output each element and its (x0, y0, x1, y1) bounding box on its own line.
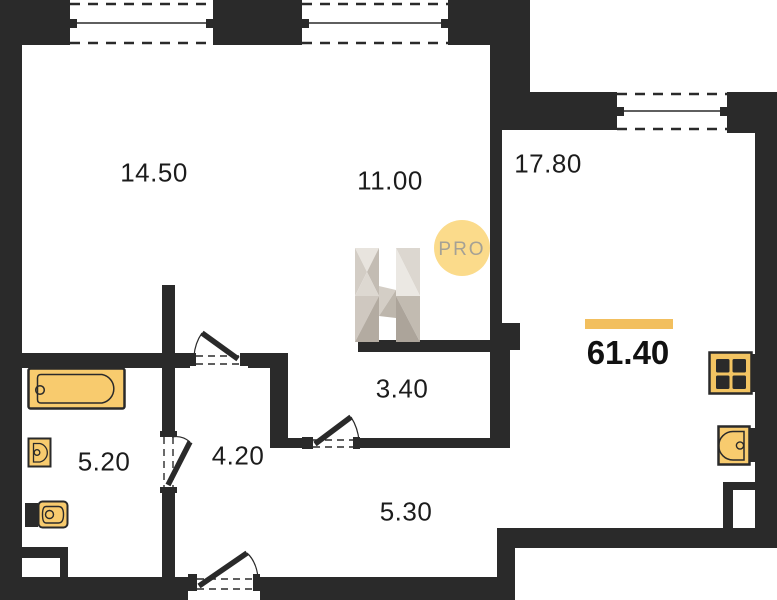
window-icon (302, 4, 448, 43)
window-icon (70, 4, 213, 43)
toilet-icon (25, 502, 68, 528)
window-icon (617, 94, 727, 129)
floor-plan: PRO 14.50 11.00 17.80 3.40 4.20 5.20 5.3… (0, 0, 777, 600)
total-area-accent-bar (585, 319, 673, 329)
kitchen-sink-icon (719, 427, 756, 465)
room-area-label-17-80: 17.80 (514, 149, 582, 180)
room-area-label-11-00: 11.00 (357, 166, 423, 197)
logo-h-icon (355, 248, 420, 342)
logo-pro-badge: PRO (434, 220, 490, 276)
bathtub-icon (29, 369, 125, 409)
entrance-door-icon (197, 553, 258, 589)
total-area-label: 61.40 (587, 334, 670, 372)
room-area-label-5-30: 5.30 (380, 497, 433, 528)
room-area-label-14-50: 14.50 (120, 158, 188, 189)
room-area-label-5-20: 5.20 (78, 447, 131, 478)
door-icon (313, 417, 359, 447)
room-area-label-4-20: 4.20 (212, 441, 265, 472)
room-area-label-3-40: 3.40 (376, 374, 429, 405)
stove-icon (710, 353, 756, 394)
logo-pro-text: PRO (438, 239, 485, 260)
door-icon (194, 333, 240, 364)
door-icon (164, 437, 190, 487)
washbasin-icon (29, 439, 51, 467)
